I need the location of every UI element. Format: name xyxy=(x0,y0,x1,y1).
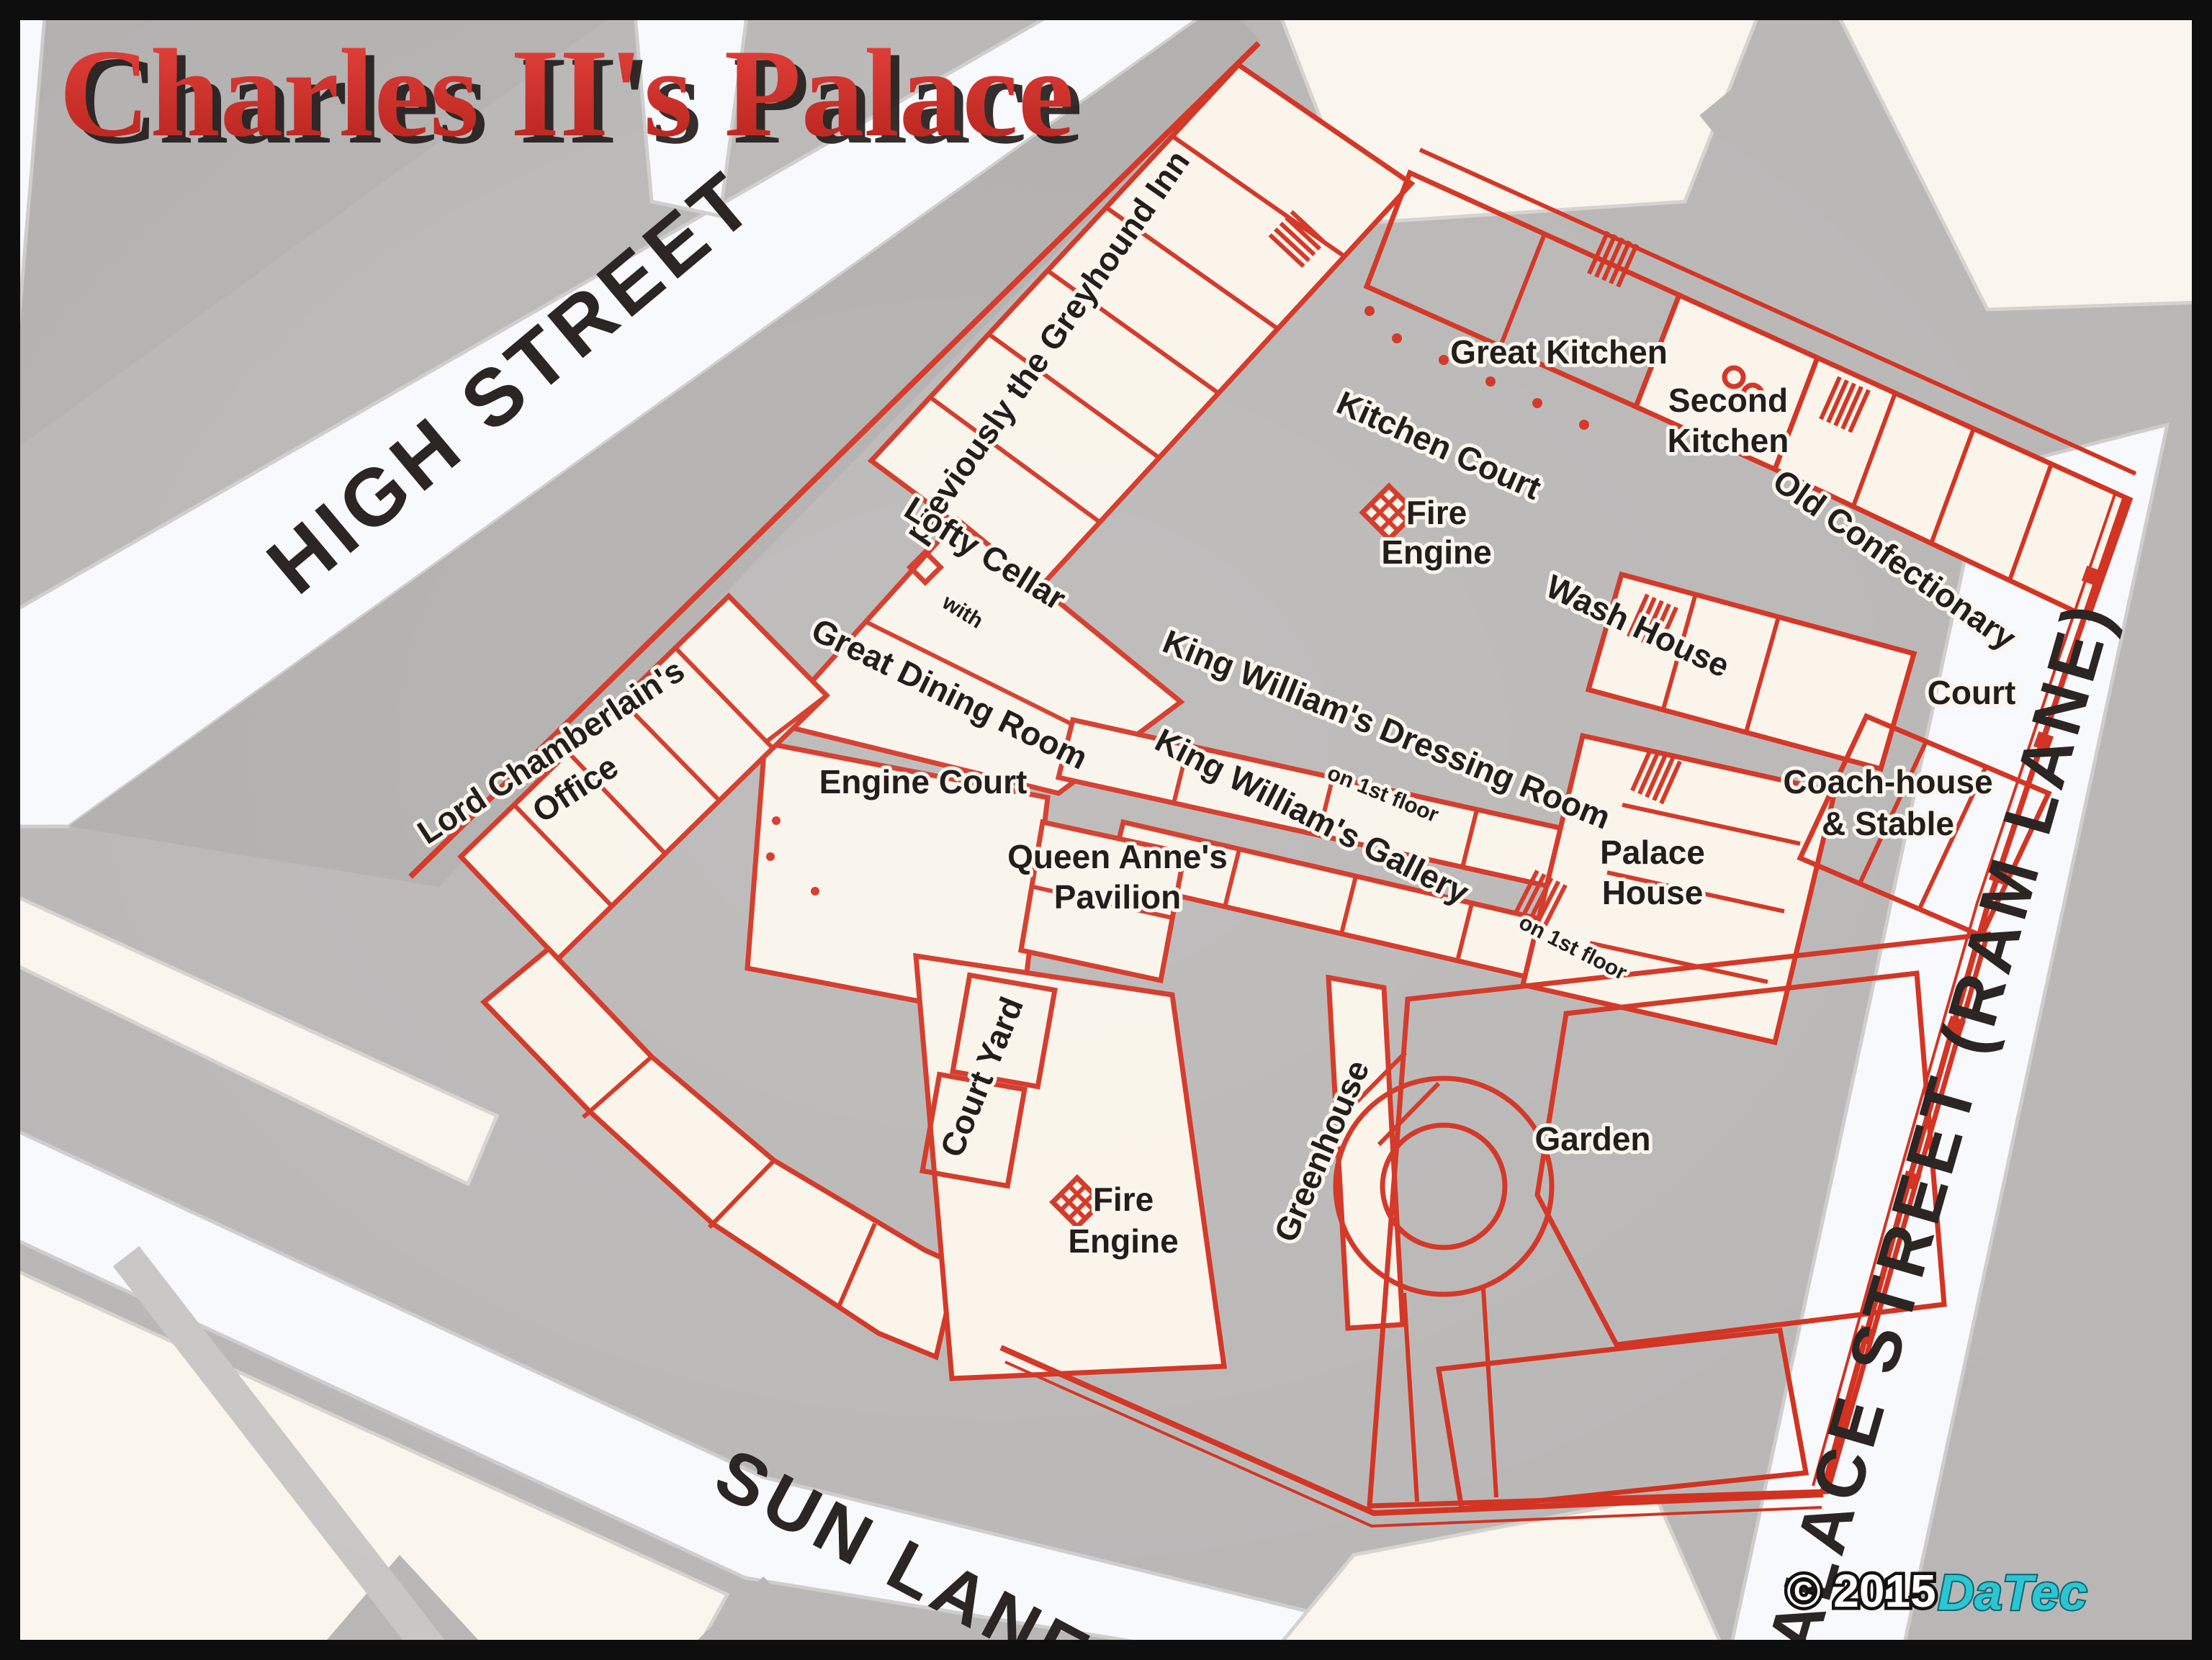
label-fire-engine-2b: Engine xyxy=(1068,1222,1178,1260)
label-palace-house-2: House xyxy=(1602,874,1704,911)
label-court: Court xyxy=(1928,674,2016,711)
label-fire-engine-1b: Engine xyxy=(1381,533,1491,571)
map-canvas: previously the Greyhound Inn Great Kitch… xyxy=(0,0,2212,1660)
label-palace-house-1: Palace xyxy=(1600,834,1705,871)
copyright-text: © 2015 xyxy=(1786,1565,1935,1617)
label-coach-house-1: Coach-house xyxy=(1783,763,1992,800)
label-engine-court: Engine Court xyxy=(819,763,1028,800)
label-second-kitchen-2: Kitchen xyxy=(1668,422,1789,459)
label-fire-engine-2a: Fire xyxy=(1093,1181,1154,1218)
brand-logo: DaTec xyxy=(1938,1564,2087,1620)
label-fire-engine-1a: Fire xyxy=(1406,494,1467,531)
label-second-kitchen-1: Second xyxy=(1668,382,1788,419)
label-queen-anne-2: Pavilion xyxy=(1054,878,1181,916)
label-queen-anne-1: Queen Anne's xyxy=(1007,838,1228,875)
title-text: Charles II's Palace xyxy=(59,23,1074,163)
label-coach-house-2: & Stable xyxy=(1822,805,1954,842)
label-garden: Garden xyxy=(1534,1120,1650,1158)
map-title: Charles II's Palace Charles II's Palace xyxy=(59,23,1083,170)
label-great-kitchen: Great Kitchen xyxy=(1450,333,1668,371)
